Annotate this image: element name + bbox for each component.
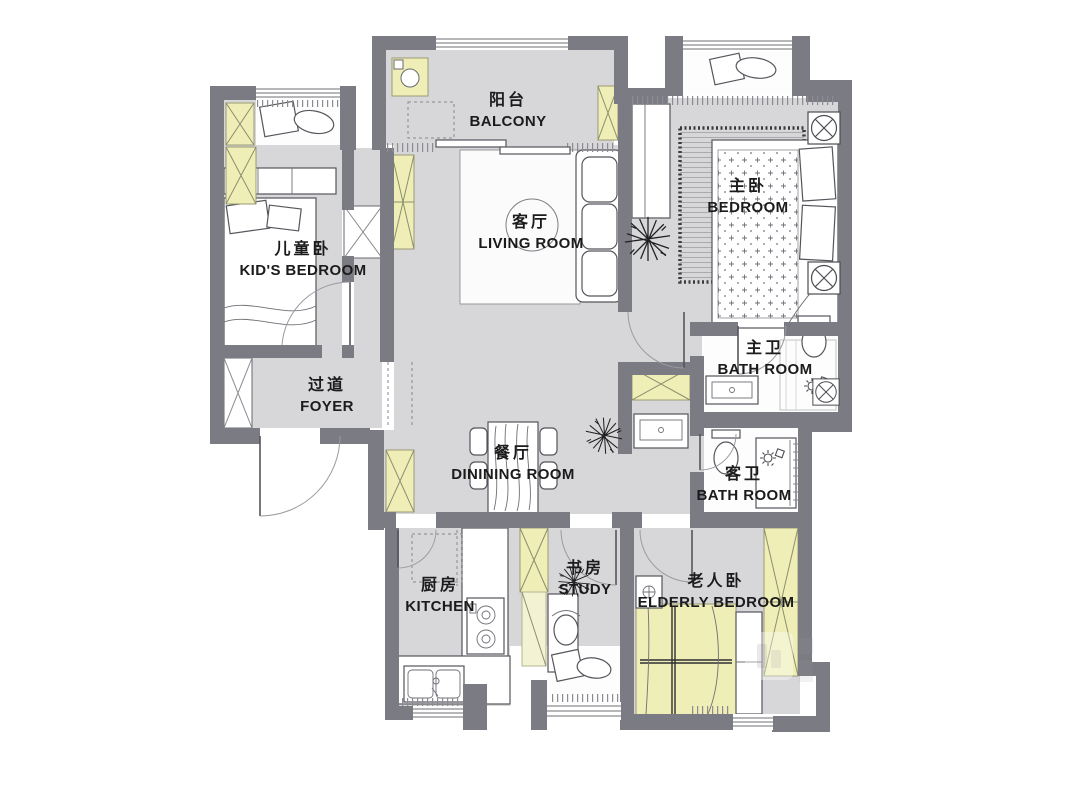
room-label-dining-room: 餐厅 DININING ROOM [451, 444, 575, 484]
furniture-hall-vanity [634, 414, 688, 448]
room-label-elderly-bedroom: 老人卧 ELDERLY BEDROOM [638, 572, 795, 612]
room-label-kitchen: 厨房 KITCHEN [405, 576, 474, 616]
room-label-guest-bath: 客卫 BATH ROOM [697, 465, 792, 505]
room-label-study: 书房 STUDY [559, 559, 612, 599]
room-label-foyer: 过道 FOYER [300, 376, 354, 416]
room-label-balcony: 阳台 BALCONY [470, 91, 547, 131]
room-label-master-bedroom: 主卧 BEDROOM [707, 177, 788, 217]
room-label-living-room: 客厅 LIVING ROOM [478, 213, 583, 253]
room-label-master-bath: 主卫 BATH ROOM [718, 339, 813, 379]
floor-plan-page: 阳台 BALCONY 客厅 LIVING ROOM 主卧 BEDROOM 儿童卧… [0, 0, 1080, 786]
room-label-kids-bedroom: 儿童卧 KID'S BEDROOM [239, 240, 366, 280]
